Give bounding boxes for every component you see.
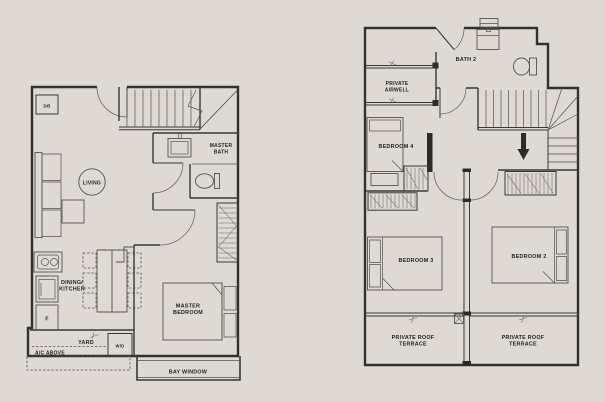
- living-label: LIVING: [83, 181, 101, 187]
- terrace-window-walls: [365, 313, 578, 316]
- bedroom-3: BEDROOM 3: [368, 193, 443, 290]
- toilet-cistern: [215, 174, 220, 189]
- stair-rail: [119, 127, 200, 130]
- stair-treads: [486, 90, 546, 127]
- wardrobe-side-hatch: [406, 168, 427, 190]
- bed-fold: [392, 161, 403, 172]
- bedroom2-door-arc: [470, 172, 498, 200]
- oven-door: [39, 280, 55, 300]
- floorplan-canvas: DB MASTER BATH LIVING: [0, 0, 605, 402]
- master-bedroom: MASTER BEDROOM: [116, 203, 238, 356]
- private-airwell: PRIVATE AIRWELL: [365, 61, 439, 107]
- second-storey-plan: PRIVATE AIRWELL BATH 2: [365, 19, 578, 366]
- bed-pillows: [224, 287, 236, 338]
- bay-window: BAY WINDOW: [137, 356, 240, 380]
- stair-direction-arrow: [518, 133, 530, 160]
- coffee-table: [62, 200, 84, 223]
- dining-table: [97, 250, 127, 312]
- wardrobe: [368, 193, 417, 210]
- bedroom2-label: BEDROOM 2: [512, 254, 547, 260]
- master-bath-label-1: MASTER: [210, 143, 233, 149]
- master-bath-label-2: BATH: [214, 150, 229, 156]
- sink-basin-left: [42, 259, 49, 266]
- sofa-cushions: [42, 154, 61, 237]
- sink-inset: [38, 255, 59, 269]
- dining-kitchen-label-1: DINING/: [61, 280, 83, 286]
- wardrobe-hatch: [507, 173, 553, 194]
- bedroom3-label: BEDROOM 3: [399, 258, 434, 264]
- bath-tap: [179, 134, 182, 139]
- bedroom-door-arc: [160, 210, 195, 245]
- bed-pillows: [557, 230, 567, 281]
- floor-trap-x: [455, 314, 464, 324]
- private-airwell-label-2: AIRWELL: [385, 88, 409, 94]
- bay-window-label: BAY WINDOW: [169, 370, 208, 376]
- wardrobe: [505, 172, 556, 196]
- terrace-right-label-2: TERRACE: [509, 342, 537, 348]
- master-bedroom-label-1: MASTER: [176, 304, 200, 310]
- terrace-left-label-2: TERRACE: [399, 342, 427, 348]
- master-bath: MASTER BATH: [153, 133, 238, 210]
- stair-wall: [119, 87, 200, 130]
- private-airwell-label-1: PRIVATE: [386, 81, 409, 87]
- bath2-sink: [477, 30, 499, 50]
- staircase: [478, 88, 578, 170]
- wall-step: [116, 247, 134, 262]
- stair-winders: [548, 88, 578, 162]
- staircase: [119, 87, 237, 130]
- wardrobe-hatch: [219, 205, 237, 260]
- bedroom4-label: BEDROOM 4: [379, 144, 414, 150]
- fridge-label: F: [45, 317, 48, 323]
- landing-door-arc: [454, 28, 464, 50]
- desk: [371, 174, 398, 186]
- washer-dryer-label: W/D: [116, 344, 125, 349]
- dining-kitchen: F DINING/ KITCHEN: [34, 250, 141, 330]
- bedroom-4: BEDROOM 4: [365, 118, 433, 192]
- ac-ledge: [27, 356, 130, 370]
- toilet-bowl: [196, 174, 214, 188]
- roof-terraces: PRIVATE ROOF TERRACE PRIVATE ROOF TERRAC…: [365, 313, 578, 348]
- bedroom-walls: [134, 245, 160, 356]
- terrace-drain-ticks: [409, 317, 527, 324]
- master-bedroom-label-2: BEDROOM: [173, 310, 203, 316]
- wardrobe-hatch: [370, 195, 415, 209]
- bath2-label: BATH 2: [456, 57, 477, 63]
- bed-fold: [383, 278, 395, 290]
- yard-label: YARD: [78, 340, 94, 346]
- bath-door-arc: [153, 163, 183, 193]
- dining-kitchen-label-2: KITCHEN: [59, 287, 85, 293]
- sink-basin-right: [51, 259, 58, 266]
- bedroom-2: BEDROOM 2: [492, 172, 568, 284]
- bedroom3-door-arc: [434, 172, 462, 200]
- bed-pillows: [370, 240, 381, 287]
- sofa-back: [35, 153, 42, 238]
- yard-drain-tick: [90, 333, 99, 340]
- landing-door-leaf: [436, 28, 454, 50]
- toilet-cistern: [530, 58, 537, 75]
- db-label: DB: [43, 104, 51, 109]
- yard-area: YARD W/D A/C ABOVE: [27, 330, 134, 370]
- bed-pillow: [370, 120, 401, 131]
- terrace-left-label-1: PRIVATE ROOF: [392, 335, 435, 341]
- stair-rail: [478, 128, 548, 131]
- floorplan-drawing: DB MASTER BATH LIVING: [0, 0, 605, 402]
- bed-fold: [212, 283, 222, 295]
- entry-door-arc: [97, 87, 127, 117]
- stair-treads: [127, 90, 191, 127]
- outer-wall: [365, 28, 578, 365]
- bath-sink-basin: [171, 142, 188, 155]
- stair-diagonal: [200, 91, 237, 130]
- bed-fold: [543, 272, 555, 284]
- bath2-door-arc: [440, 88, 466, 114]
- toilet-bowl: [514, 58, 530, 75]
- wardrobe-side: [404, 166, 428, 191]
- first-storey-plan: DB MASTER BATH LIVING: [27, 87, 240, 380]
- living-room: LIVING: [35, 153, 105, 238]
- terrace-right-label-1: PRIVATE ROOF: [502, 335, 545, 341]
- bay-window-outline: [137, 356, 240, 380]
